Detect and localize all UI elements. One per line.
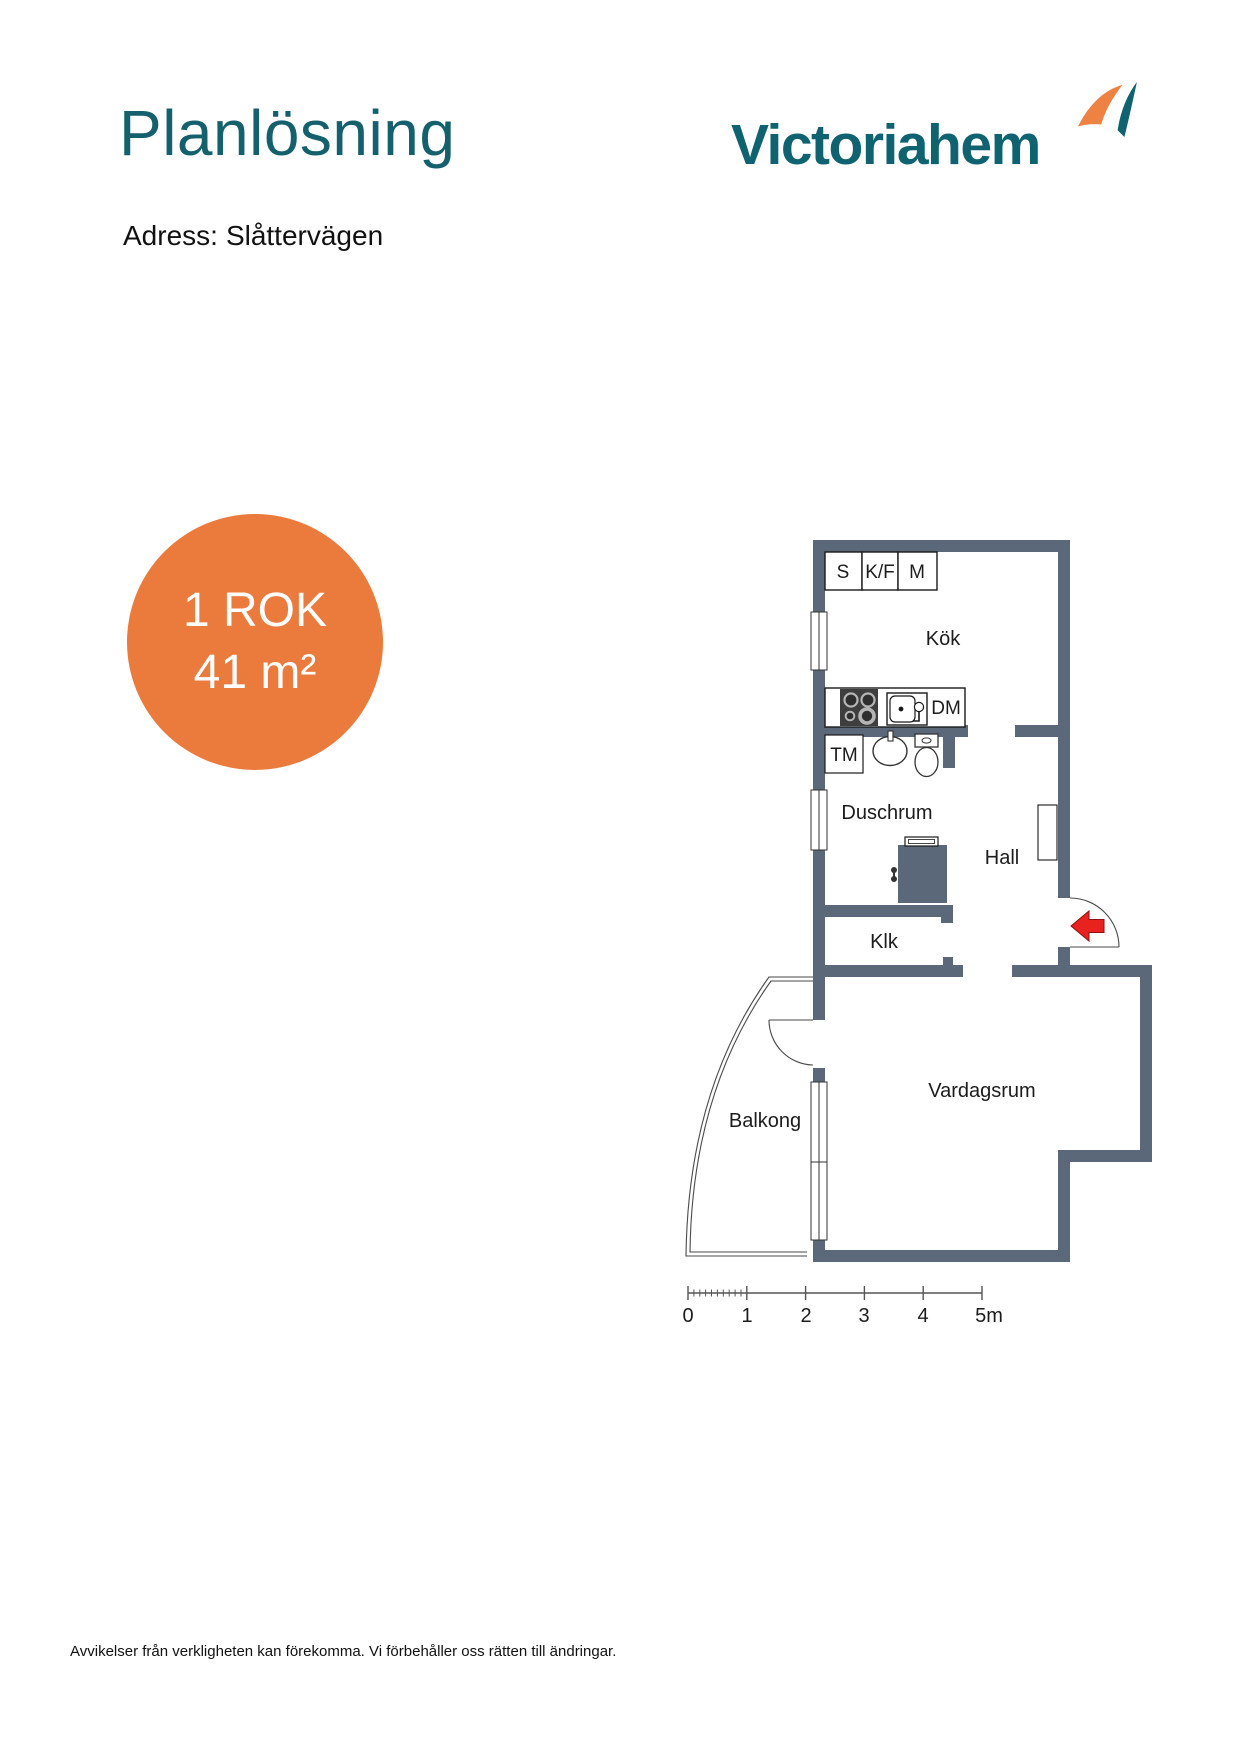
footer-disclaimer: Avvikelser från verkligheten kan förekom… (70, 1643, 616, 1660)
floorplan-page: { "header": { "title": "Planlösning", "a… (0, 0, 1240, 1754)
room-label-living: Vardagsrum (928, 1080, 1035, 1102)
room-label-hall: Hall (985, 847, 1019, 869)
scale-tick-2: 2 (800, 1305, 811, 1327)
scale-bar (688, 1286, 982, 1300)
floorplan-drawing: S K/F M DM TM (0, 0, 1240, 1754)
room-label-balcony: Balkong (729, 1110, 801, 1132)
room-label-shower: Duschrum (841, 802, 932, 824)
unit-m-label: M (909, 562, 925, 583)
walls (813, 540, 1152, 1262)
room-label-kitchen: Kök (926, 628, 961, 650)
sink-icon (887, 693, 927, 725)
hall-cabinet (1038, 805, 1057, 860)
entrance-arrow-icon (1071, 911, 1104, 941)
toilet-icon (915, 734, 938, 777)
washer-label: TM (830, 745, 857, 766)
scale-tick-3: 3 (858, 1305, 869, 1327)
shower-icon (891, 837, 947, 903)
dishwasher-label: DM (931, 698, 961, 719)
unit-s-label: S (837, 562, 850, 583)
balcony-door (769, 1020, 813, 1065)
scale-tick-1: 1 (741, 1305, 752, 1327)
scale-tick-5: 5m (975, 1305, 1003, 1327)
scale-tick-4: 4 (917, 1305, 928, 1327)
kitchen-counter: DM (825, 688, 965, 727)
unit-kf-label: K/F (865, 562, 895, 583)
scale-tick-0: 0 (682, 1305, 693, 1327)
stove-icon (840, 689, 878, 726)
room-label-closet: Klk (870, 931, 899, 953)
